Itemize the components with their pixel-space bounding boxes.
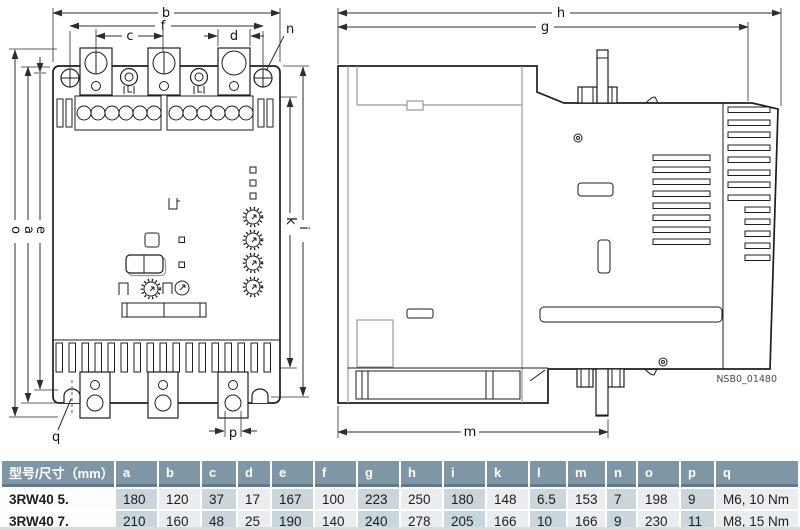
dim-value-cell: 120	[159, 489, 200, 509]
table-row: 3RW40 5. 180 120 37 17 167 100 223 250 1…	[2, 489, 798, 509]
dim-label-p: p	[229, 426, 237, 441]
dim-label-n: n	[286, 22, 294, 37]
col-header: l	[530, 461, 566, 487]
dim-value-cell: 167	[272, 489, 313, 509]
dim-value-cell: 180	[116, 489, 157, 509]
dim-value-cell: 153	[568, 489, 605, 509]
table-header-row: 型号/尺寸（mm） a b c d e f g h i k l m n o p …	[2, 461, 798, 487]
col-header: p	[681, 461, 714, 487]
dim-value-cell: 100	[315, 489, 356, 509]
din-rail-tab	[578, 50, 658, 103]
col-header-model: 型号/尺寸（mm）	[2, 461, 114, 487]
front-view-drawing: b f c d n o a	[8, 6, 311, 445]
device-body-side	[338, 66, 778, 403]
dim-value-cell: M6, 10 Nm	[716, 489, 798, 509]
side-box	[357, 320, 393, 367]
dim-label-q: q	[52, 430, 60, 445]
mounting-notch	[252, 389, 268, 403]
mounting-screw-icon	[61, 69, 79, 87]
col-header: e	[272, 461, 313, 487]
dim-value-cell: 180	[444, 489, 485, 509]
col-header: i	[444, 461, 485, 487]
dim-label-m: m	[464, 425, 477, 440]
bottom-terminal-lugs	[80, 372, 248, 418]
dim-label-g: g	[541, 20, 549, 35]
col-header: m	[568, 461, 605, 487]
dim-value-cell: 7	[607, 489, 636, 509]
col-header: q	[716, 461, 798, 487]
bottom-side-lugs	[577, 369, 657, 416]
col-header: c	[202, 461, 236, 487]
col-header: a	[116, 461, 157, 487]
dim-value-cell: 223	[358, 489, 399, 509]
dim-label-e: e	[33, 226, 48, 234]
col-header: k	[487, 461, 528, 487]
dimension-drawing-page: b f c d n o a	[0, 0, 800, 530]
col-header: n	[607, 461, 636, 487]
dim-value-cell: 6.5	[530, 489, 566, 509]
dim-value-cell: 37	[202, 489, 236, 509]
dim-label-k: k	[283, 217, 298, 225]
dim-label-o: o	[8, 226, 23, 234]
top-terminal-lugs	[80, 48, 250, 95]
model-cell: 3RW40 5.	[2, 489, 114, 509]
dim-label-i: i	[296, 226, 311, 230]
dim-value-cell: 250	[401, 489, 442, 509]
dim-label-d: d	[230, 29, 238, 44]
dimension-drawing: b f c d n o a	[0, 0, 800, 459]
col-header: f	[315, 461, 356, 487]
dim-value-cell: 9	[681, 489, 714, 509]
side-view-drawing: h g m NSB0_01480	[338, 6, 781, 440]
col-header: d	[238, 461, 270, 487]
col-header: g	[358, 461, 399, 487]
dim-value-cell: 148	[487, 489, 528, 509]
mounting-screw-icon	[254, 69, 272, 87]
col-header: b	[159, 461, 200, 487]
dimensions-table: 型号/尺寸（mm） a b c d e f g h i k l m n o p …	[0, 459, 800, 530]
dim-label-c: c	[126, 29, 133, 44]
dim-label-h: h	[557, 6, 565, 21]
col-header: h	[401, 461, 442, 487]
dim-value-cell: 17	[238, 489, 270, 509]
drawing-code: NSB0_01480	[716, 374, 777, 385]
col-header: o	[638, 461, 679, 487]
dim-value-cell: 198	[638, 489, 679, 509]
cover-clip	[407, 101, 423, 110]
